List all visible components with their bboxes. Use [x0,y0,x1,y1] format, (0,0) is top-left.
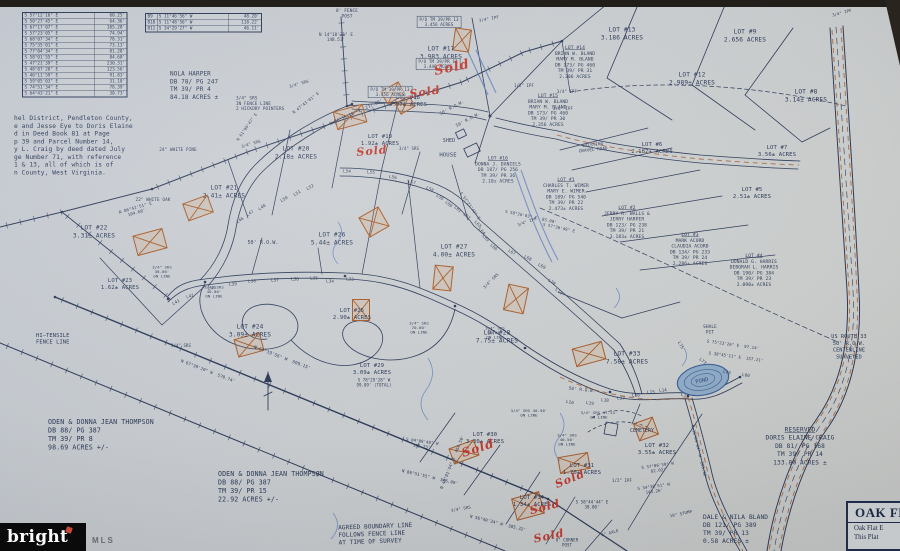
title-block-line1: Oak Flat E [848,523,900,532]
structure-symbol [634,417,659,441]
scan-edge-top [0,0,900,7]
watermark-box: bright [0,523,86,551]
structure-symbol [353,300,370,321]
brightmls-watermark: bright MLS [0,523,130,551]
structure-symbol [433,265,453,291]
title-block-line2: This Plat [848,532,900,541]
structure-symbol [359,207,389,237]
table-row: S 64°43'21" E30.73' [23,91,128,97]
structure-symbol [333,104,367,129]
plat-title-block: OAK FL Oak Flat E This Plat [846,501,900,551]
road-orange-dashes [557,28,858,551]
structure-symbol [572,341,606,366]
table-row: B11S 34°29'27" W46.11' [146,26,262,32]
structure-symbol [504,284,529,314]
structure-symbol [453,28,472,52]
watermark-brand: bright [7,527,68,547]
structure-symbol [183,195,214,221]
pond-symbol [674,360,731,400]
bearing-table-b: B9S 11°46'56" W48.20'B10S 11°48'56" W118… [145,13,379,52]
sold-stamp: Sold [356,143,388,159]
plat-map-photo: S 57°12'16" E60.25'S 50°27'45" E64.36'S … [0,0,900,551]
watermark-mls: MLS [92,536,115,545]
title-block-heading: OAK FL [848,503,900,523]
structure-symbol [234,333,264,357]
structure-symbol [133,228,167,255]
